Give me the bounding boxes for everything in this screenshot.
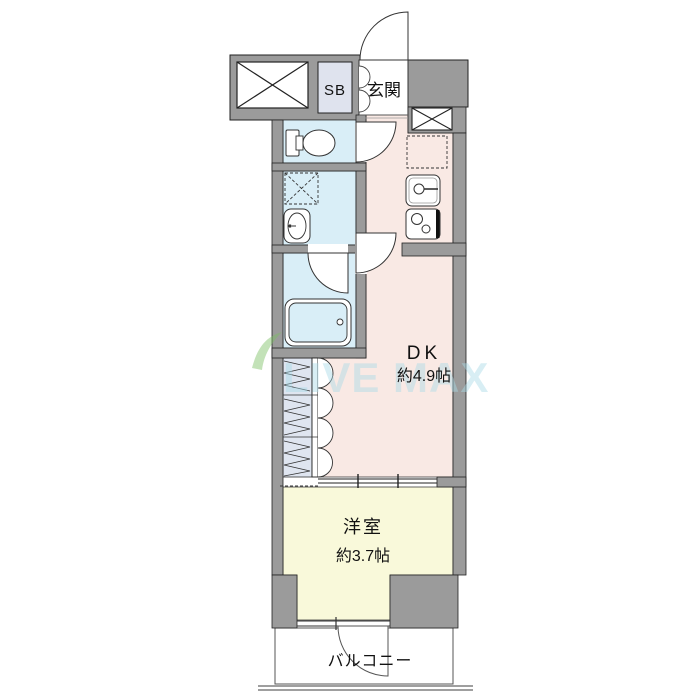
wall-bottom-right-block [390,575,458,628]
wall-right-of-entrance [408,60,468,107]
wall-bottom-left-block [272,575,297,628]
shoe-box-label: SB [324,82,346,99]
washbasin-icon [284,209,310,243]
floorplan-svg: LIVE MAX SB 玄関 DK 約4.9帖 洋室 約3.7帖 バルコニー [0,0,700,700]
wall-kitchen-bottom [402,243,466,256]
entrance-door-swing-icon [360,12,408,60]
kitchen-sink-icon [406,175,440,206]
wall-dk-western-right [437,477,466,487]
wall-left [272,120,283,575]
dk-label: DK [407,343,441,364]
bathtub-icon [285,299,351,346]
watermark-text: LIVE MAX [283,354,489,401]
stove-edge [436,210,440,238]
western-room-size-label: 約3.7帖 [336,547,390,565]
western-room-label: 洋室 [343,517,383,537]
wall-toilet-washroom [272,163,366,171]
balcony-label: バルコニー [328,653,413,670]
floorplan-image: LIVE MAX SB 玄関 DK 約4.9帖 洋室 約3.7帖 バルコニー [0,0,700,700]
dk-size-label: 約4.9帖 [397,367,451,385]
entrance-label: 玄関 [367,81,401,100]
toilet-icon [286,130,335,156]
stove-icon [406,209,440,239]
